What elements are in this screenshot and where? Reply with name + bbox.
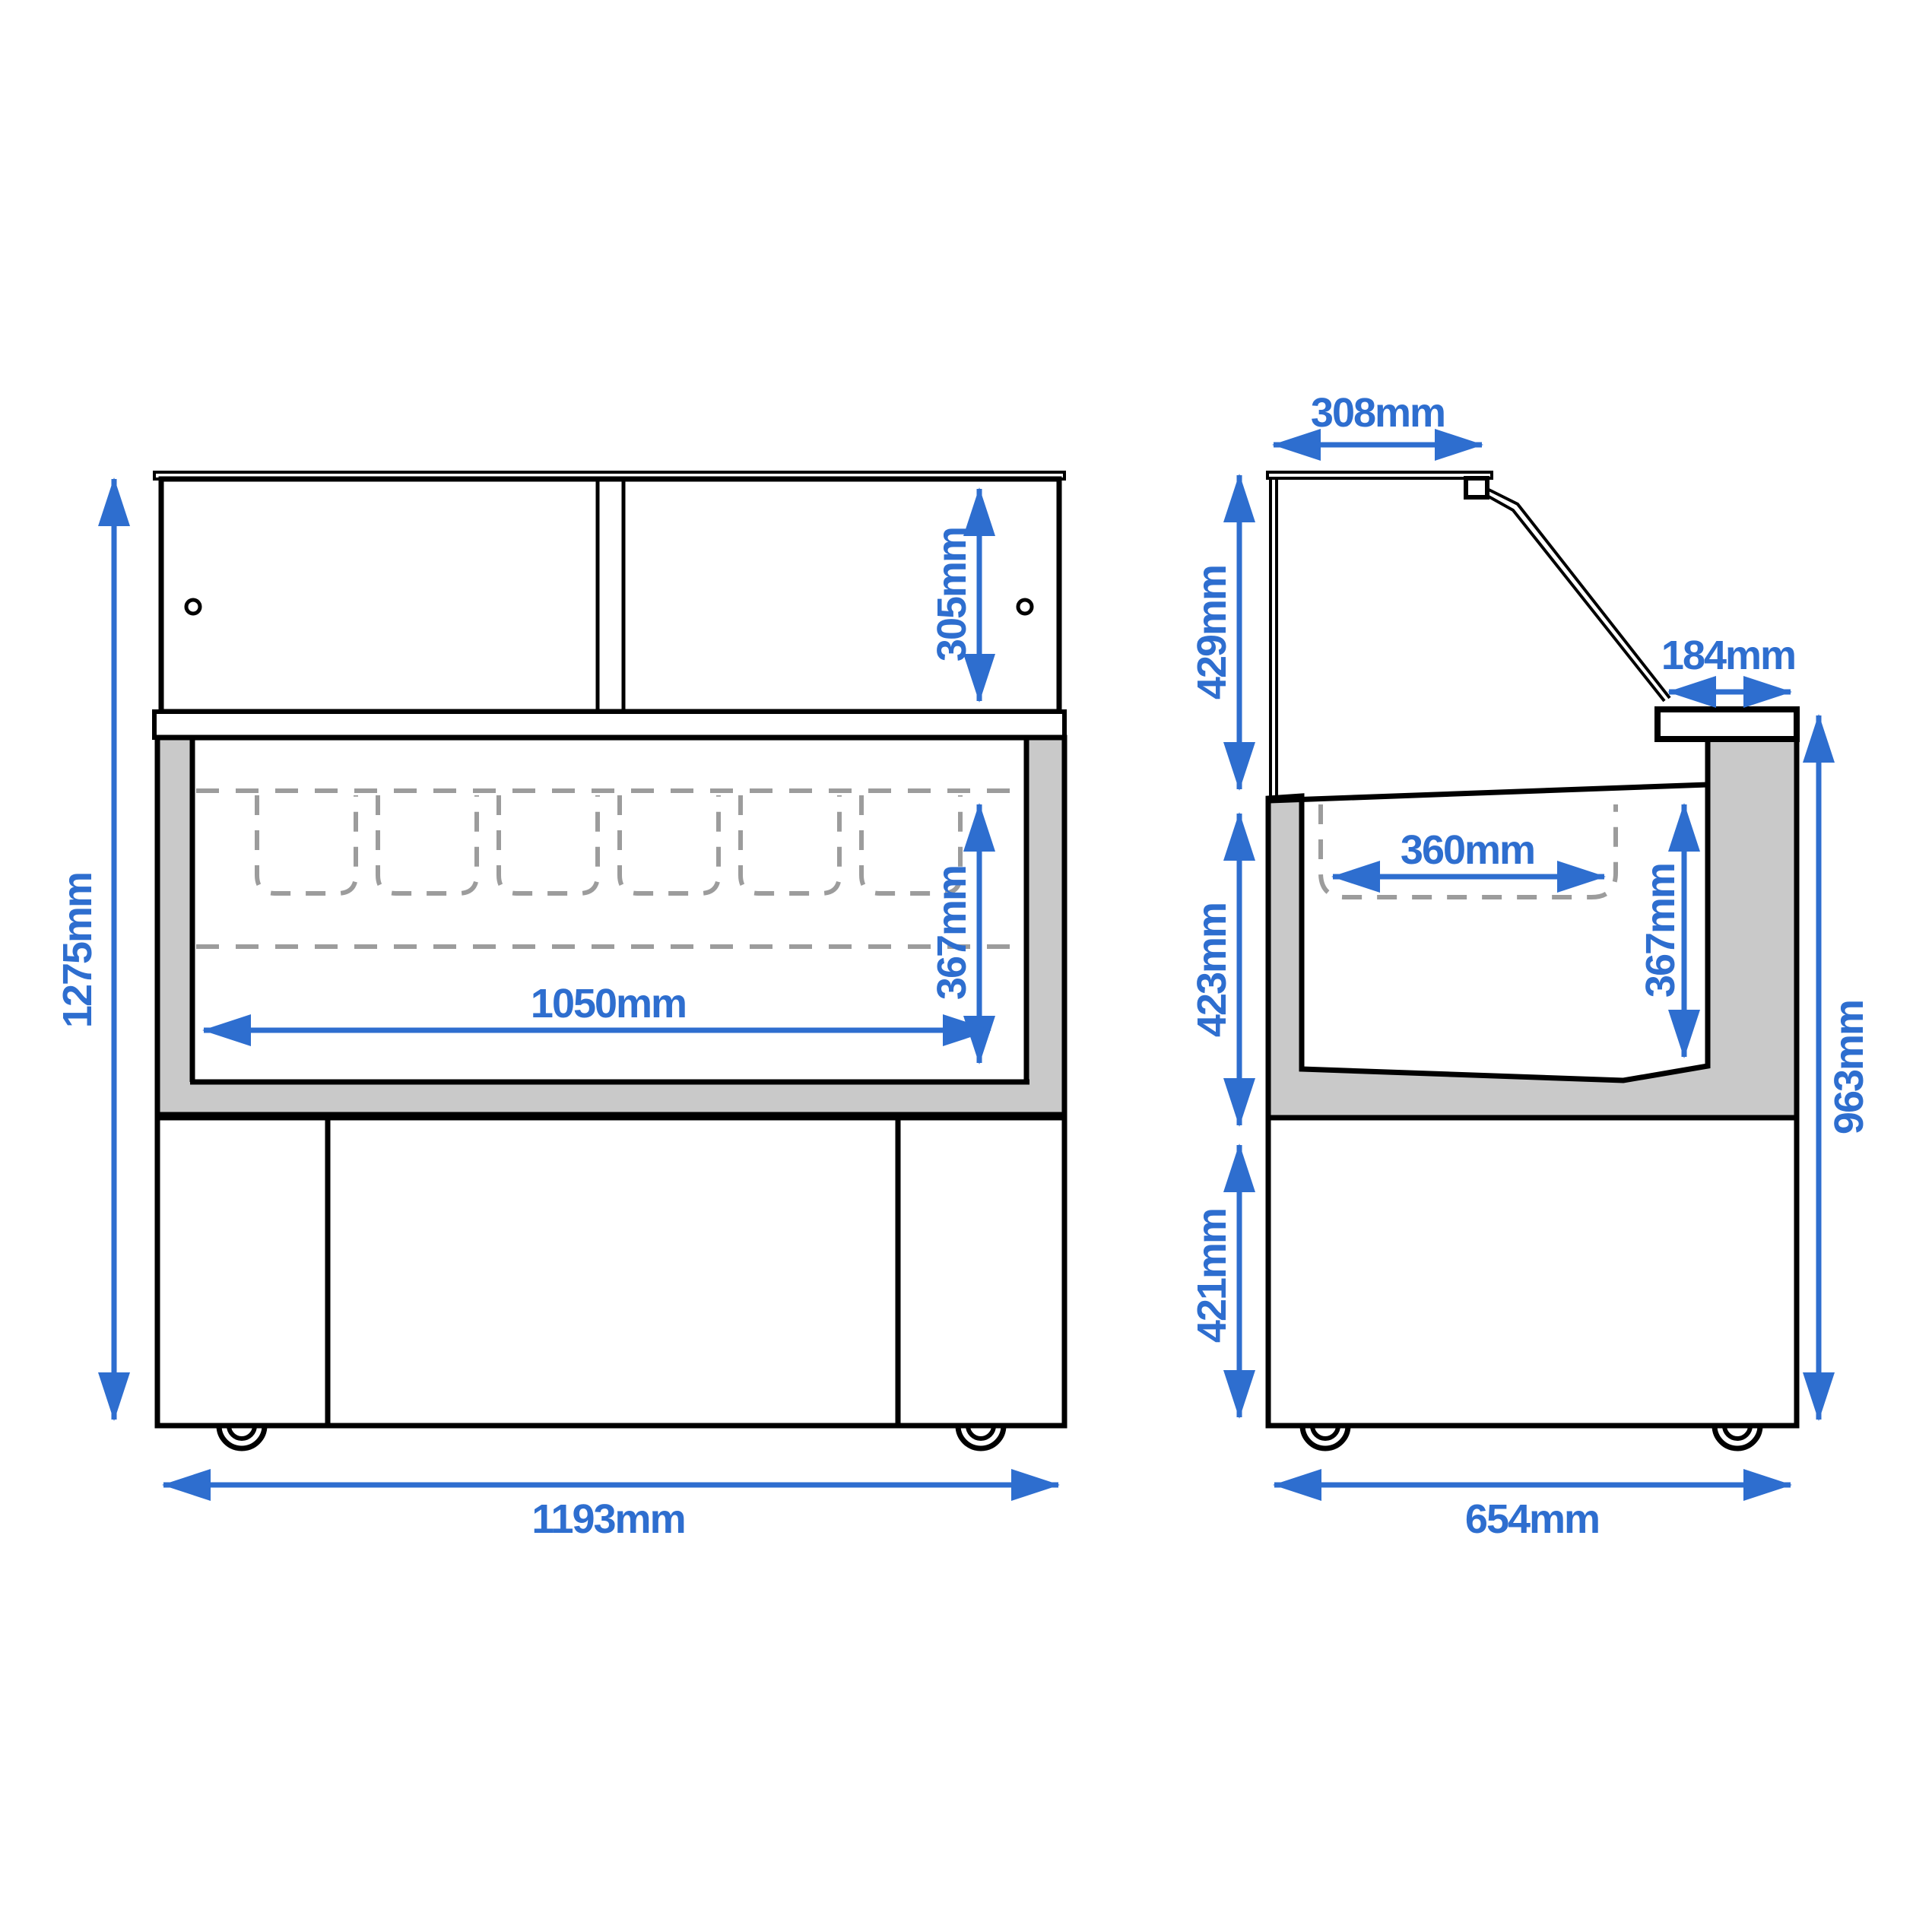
dim-label-front-hutch-height: 305mm [931,528,972,661]
side-well-top-edge [1270,785,1708,801]
front-hutch-sliding-doors [154,472,1064,712]
caster-wheel [1302,1426,1348,1448]
dim-label-front-pan-row-width: 1050mm [531,983,686,1024]
dim-label-side-mid-height: 423mm [1191,903,1232,1037]
dim-label-side-overall-depth: 654mm [1465,1499,1599,1540]
technical-drawing-page: 1275mm 305mm 367mm 1050mm 1193mm 308mm 4… [0,0,1932,1932]
side-base-cabinet [1268,1118,1797,1426]
dim-label-front-overall-height: 1275mm [57,873,98,1028]
dim-label-side-top-depth: 308mm [1311,392,1445,433]
side-lamp-housing [1466,478,1487,497]
dim-label-front-pan-depth: 367mm [931,866,972,1000]
caster-wheel [219,1426,265,1448]
side-view [1267,472,1797,1448]
front-base-cabinet [157,1118,1064,1426]
front-counter-board [154,712,1064,738]
dim-label-side-base-height: 421mm [1191,1209,1232,1343]
side-top-plate [1267,472,1492,478]
caster-wheel [1715,1426,1760,1448]
side-sloped-glass [1487,490,1670,701]
dim-label-side-upper-height: 429mm [1191,566,1232,700]
dim-label-side-pan-width: 360mm [1401,830,1534,871]
dim-label-side-board-depth: 184mm [1661,635,1795,676]
front-view [154,472,1064,1448]
side-serving-board [1658,709,1797,739]
dim-label-side-pan-depth: 367mm [1640,864,1681,998]
dim-label-front-overall-width: 1193mm [531,1499,684,1540]
dim-label-side-counter-height: 963mm [1829,1001,1870,1134]
caster-wheel [958,1426,1004,1448]
